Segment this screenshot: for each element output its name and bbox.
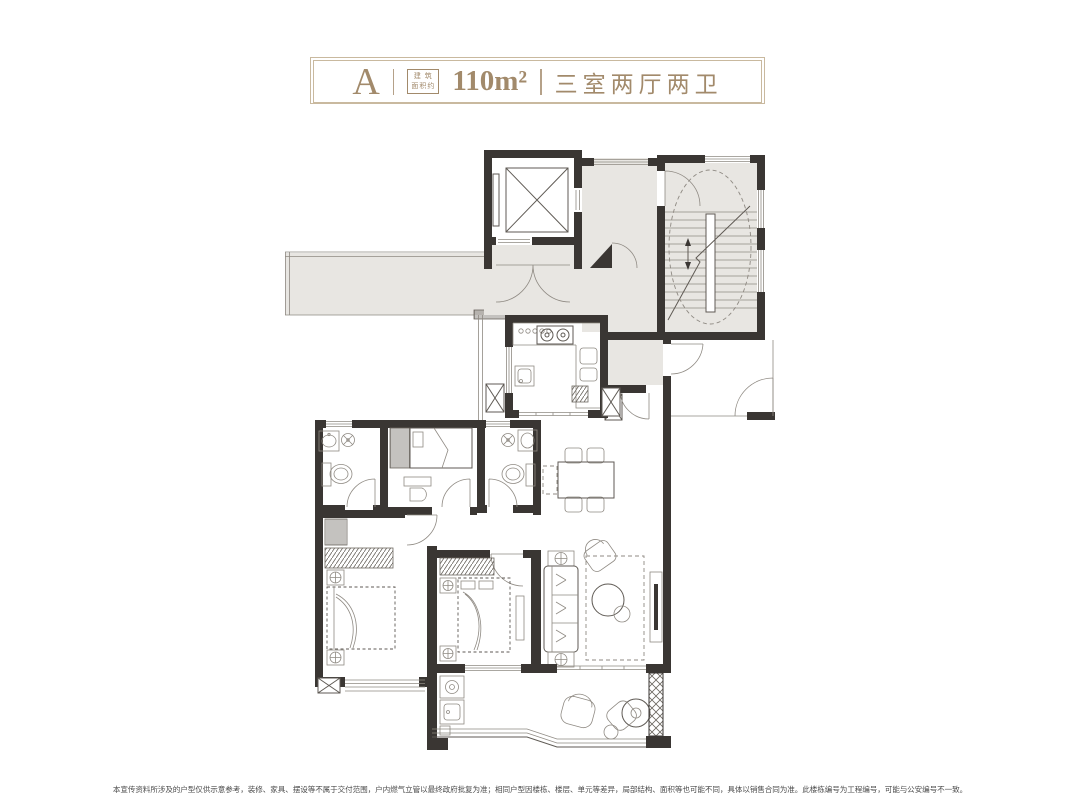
hall-door	[620, 390, 649, 419]
bathroom-1	[319, 431, 375, 507]
south-walls	[428, 664, 671, 673]
stair-rail	[706, 214, 715, 312]
wardrobe	[390, 428, 410, 468]
bench	[516, 596, 524, 640]
living-area	[544, 533, 662, 667]
shelf-unit	[325, 519, 347, 545]
exhaust-fan	[342, 434, 355, 447]
light-well-strip	[479, 315, 505, 420]
wardrobe	[440, 558, 494, 575]
duct-shaft	[486, 384, 504, 412]
floor-plan-svg	[270, 140, 785, 765]
armchair	[578, 533, 618, 574]
window	[759, 190, 764, 228]
kitchen-appliance	[580, 348, 597, 364]
double-bed-2	[458, 578, 510, 652]
window	[345, 680, 425, 687]
vestibule-door	[671, 344, 703, 374]
dining-area	[543, 448, 614, 512]
kitchen-sliding-door	[519, 413, 588, 416]
bedroom-2-door	[491, 554, 523, 586]
window	[705, 157, 750, 162]
public-corridor	[285, 252, 506, 319]
unit-b-entry	[671, 340, 775, 420]
kitchen-flue	[602, 388, 620, 416]
unit-b-door	[735, 378, 773, 416]
disclaimer-text: 本宣传资料所涉及的户型仅供示意参考，装修、家具、摆设等不属于交付范围，户内燃气立…	[113, 784, 967, 795]
nightstand	[440, 578, 456, 593]
kitchen	[505, 315, 620, 418]
tv-cabinet	[650, 572, 662, 642]
divider-bar	[393, 69, 395, 95]
bathroom-2	[489, 430, 537, 507]
coffee-table	[592, 584, 630, 622]
unit-header-banner: A 建 筑 面积约 110m² 三室两厅两卫	[310, 57, 765, 104]
single-bed	[410, 428, 472, 468]
floor-plan-page: A 建 筑 面积约 110m² 三室两厅两卫	[0, 0, 1080, 809]
window	[465, 666, 521, 671]
area-caption-line1: 建 筑	[411, 72, 435, 82]
sofa	[544, 566, 578, 652]
area-caption-line2: 面积约	[411, 82, 435, 92]
toilet	[322, 463, 352, 486]
hall-north-wall	[582, 158, 657, 166]
wardrobe	[325, 548, 393, 568]
window	[507, 347, 512, 393]
washing-machine	[440, 676, 464, 698]
dining-chairs	[565, 448, 604, 512]
kitchen-sink	[515, 366, 534, 386]
elevator-shaft	[484, 150, 582, 245]
nightstand	[327, 570, 344, 585]
area-value: 110m²	[452, 67, 527, 96]
layout-label: 三室两厅两卫	[555, 65, 723, 99]
floor-drain	[440, 726, 450, 735]
kitchen-cabinet	[572, 386, 588, 402]
unit-header-inner: A 建 筑 面积约 110m² 三室两厅两卫	[313, 60, 762, 103]
desk-chair	[404, 477, 431, 501]
laundry-sink	[440, 700, 464, 724]
window	[759, 250, 764, 292]
study-room	[390, 428, 472, 507]
bedroom-1	[315, 515, 437, 693]
elevator-door	[498, 240, 530, 243]
ac-shaft	[318, 678, 340, 693]
balcony-sliding-door	[557, 666, 646, 670]
nightstand	[327, 650, 344, 665]
kitchen-appliance	[580, 368, 597, 381]
dining-table	[558, 462, 614, 498]
exhaust-fan	[502, 434, 515, 447]
side-table	[548, 551, 574, 566]
bedroom-2	[440, 554, 524, 661]
elevator-door	[576, 190, 580, 210]
balcony	[428, 664, 671, 750]
bedroom-1-door	[407, 515, 437, 545]
study-door	[442, 479, 470, 507]
sideboard	[543, 466, 557, 494]
bathroom-1-door	[347, 479, 375, 507]
balcony-screen	[646, 673, 671, 748]
unit-type-label: A	[352, 63, 379, 101]
pouf	[604, 725, 618, 739]
balcony-lounge	[559, 690, 650, 739]
area-caption-box: 建 筑 面积约	[407, 69, 439, 95]
toilet	[502, 464, 535, 486]
nightstand	[440, 646, 456, 661]
divider-bar	[540, 69, 542, 95]
double-bed-1	[327, 587, 395, 649]
